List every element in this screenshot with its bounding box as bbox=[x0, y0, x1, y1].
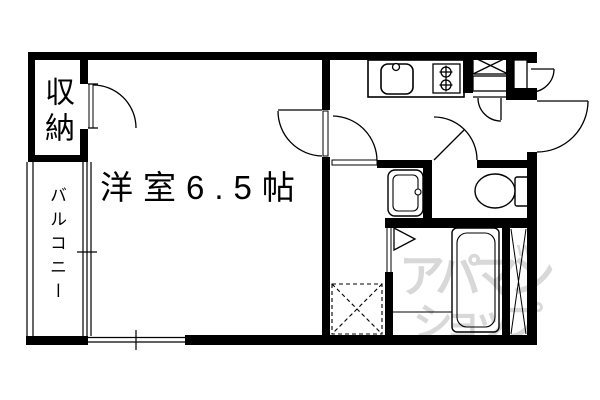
south-window-icon bbox=[88, 330, 185, 350]
room-door-icon bbox=[278, 110, 328, 156]
main-room-label: 洋室6.5帖 bbox=[100, 171, 305, 204]
entrance-inner-door-icon bbox=[473, 97, 527, 121]
wall-genkan-south bbox=[477, 160, 527, 168]
wall-balcony-bottom bbox=[26, 336, 88, 345]
kitchen-counter bbox=[368, 60, 464, 97]
washing-machine-icon bbox=[332, 284, 382, 334]
entrance-area bbox=[473, 57, 527, 91]
kitchen-sink-icon bbox=[381, 64, 413, 95]
gas-stove-icon bbox=[433, 64, 460, 93]
washbasin-icon bbox=[388, 170, 423, 216]
entrance-door-icon bbox=[537, 101, 588, 152]
wall-washbasin-right bbox=[423, 160, 432, 222]
wall-bath-west-lower bbox=[385, 272, 393, 335]
wall-right-upper bbox=[527, 52, 537, 63]
wall-top bbox=[28, 52, 537, 60]
floor-plan-canvas: アパマン ショップ w ° bbox=[0, 0, 600, 400]
pipe-space-icon bbox=[511, 229, 526, 334]
wall-bath-ps bbox=[502, 228, 510, 335]
wall-left bbox=[28, 52, 35, 162]
washroom-door-icon bbox=[332, 116, 377, 165]
meter-box-icon bbox=[514, 60, 527, 90]
wall-closet-right-upper bbox=[80, 52, 88, 84]
balcony-label: バルコニー bbox=[48, 186, 65, 306]
wall-divider-upper bbox=[322, 60, 330, 110]
balcony-rail bbox=[27, 162, 33, 336]
closet-label: 収納 bbox=[41, 76, 71, 148]
toilet-icon bbox=[475, 174, 529, 208]
wall-bottom bbox=[185, 335, 537, 345]
balcony-window-icon bbox=[77, 162, 97, 336]
bathtub-icon bbox=[452, 228, 499, 332]
wall-closet-right-lower bbox=[80, 129, 88, 162]
wall-bath-north bbox=[385, 218, 537, 228]
wall-closet-bottom bbox=[28, 155, 88, 162]
toilet-door-icon bbox=[434, 117, 477, 160]
bath-folding-door-icon bbox=[387, 228, 415, 272]
closet-door-icon bbox=[88, 84, 136, 128]
wall-divider-lower bbox=[322, 157, 330, 335]
shoe-cabinet-icon bbox=[473, 57, 508, 91]
